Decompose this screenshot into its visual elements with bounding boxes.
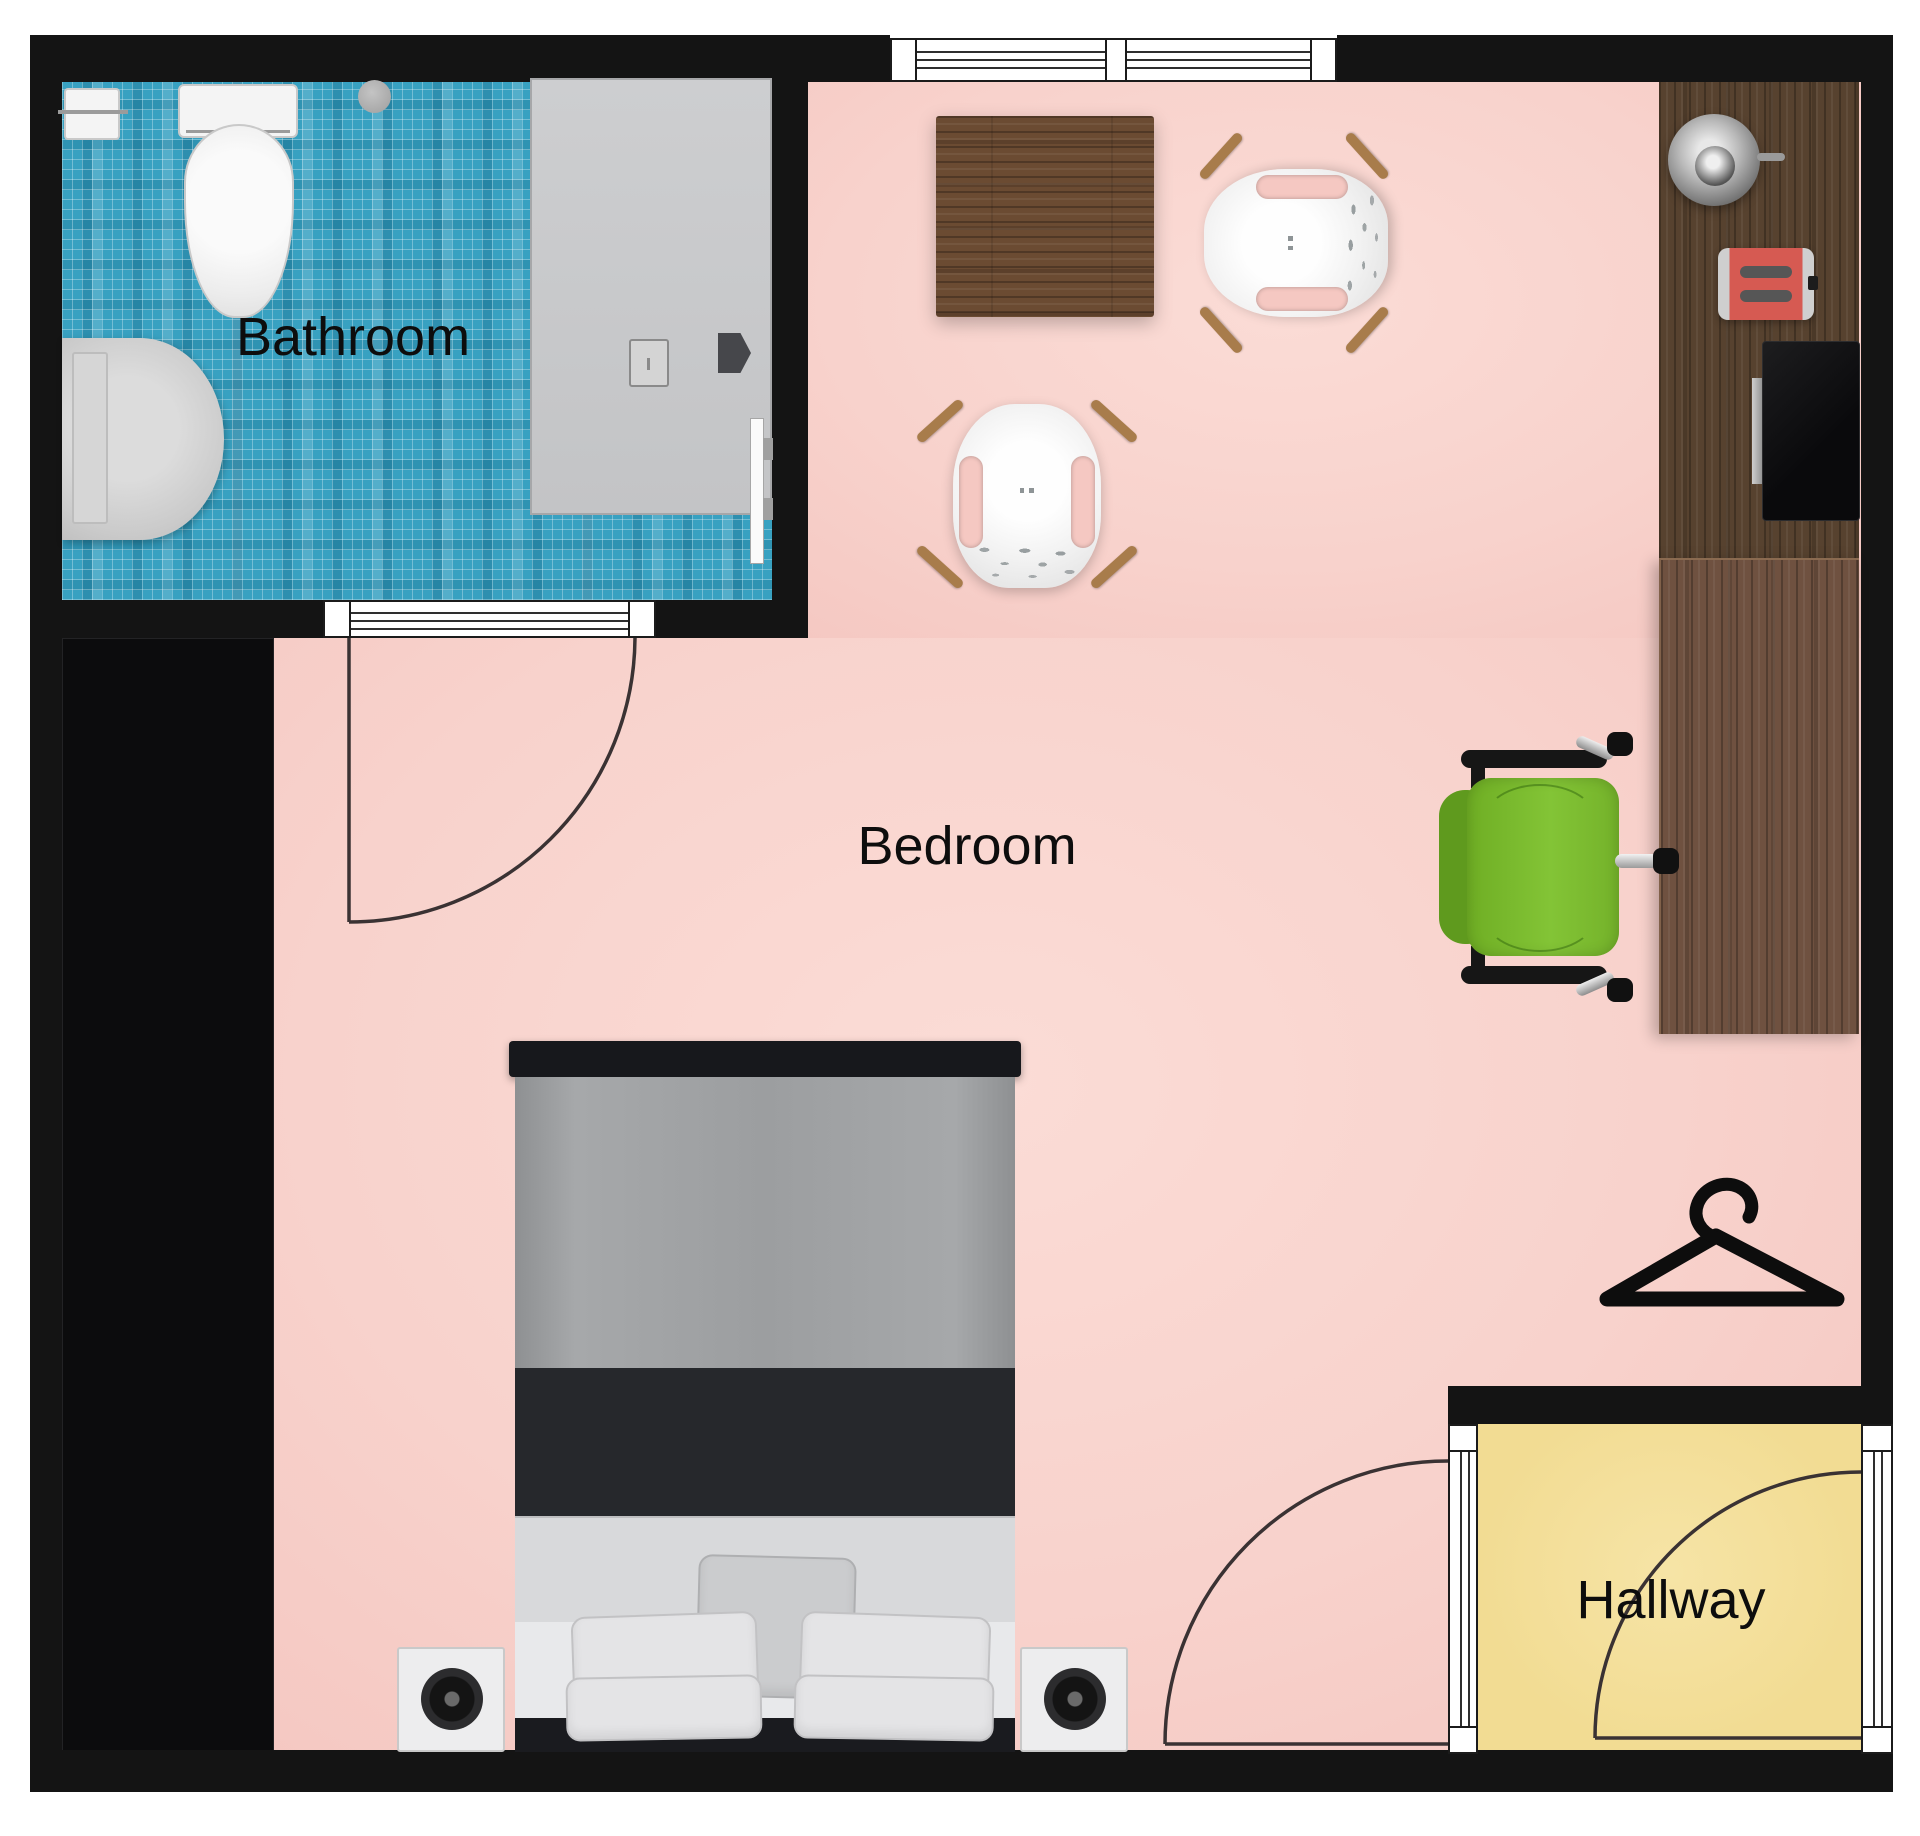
bathroom-label: Bathroom xyxy=(236,306,470,368)
hallway-label: Hallway xyxy=(1576,1569,1765,1631)
floor-plan: Bathroom Bedroom Hallway xyxy=(0,0,1920,1836)
plan-linework xyxy=(0,0,1920,1836)
bedroom-hallway-door-swing-arc xyxy=(1165,1461,1448,1744)
bathroom-door-swing-arc xyxy=(349,638,635,922)
bedroom-label: Bedroom xyxy=(857,815,1076,877)
clothes-hanger-icon xyxy=(1607,1184,1837,1299)
